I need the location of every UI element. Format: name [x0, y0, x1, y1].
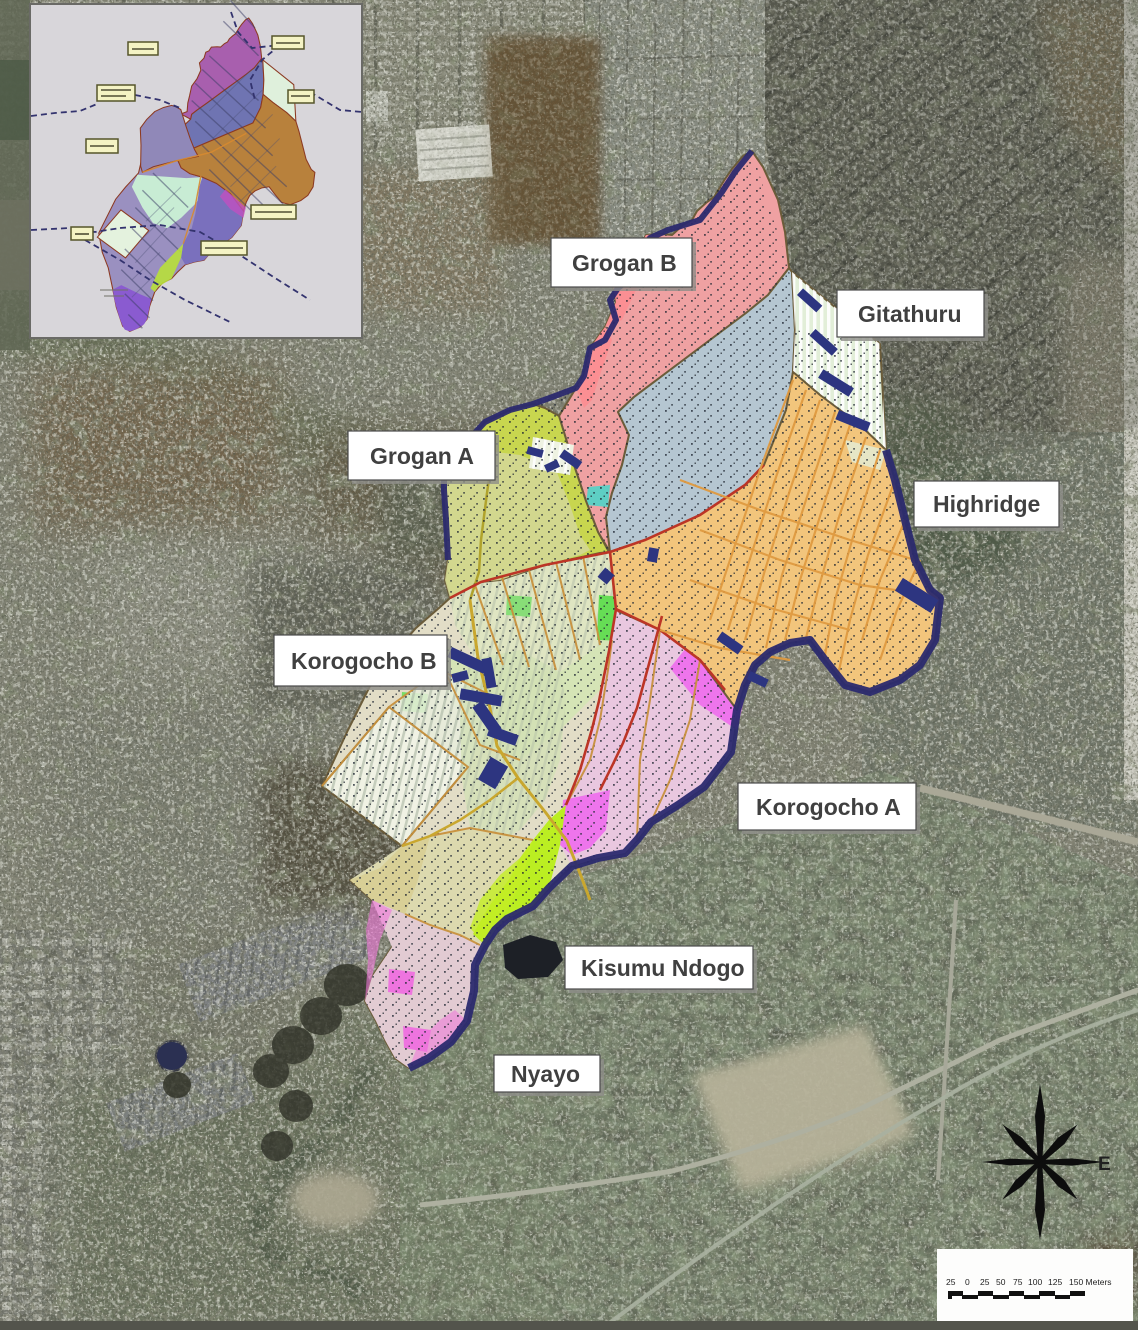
svg-text:25: 25	[980, 1277, 990, 1287]
svg-text:100: 100	[1028, 1277, 1042, 1287]
svg-text:Gitathuru: Gitathuru	[858, 301, 962, 327]
svg-text:Grogan B: Grogan B	[572, 250, 677, 276]
svg-text:Korogocho A: Korogocho A	[756, 794, 901, 820]
svg-text:25: 25	[946, 1277, 956, 1287]
svg-text:50: 50	[996, 1277, 1006, 1287]
svg-text:Highridge: Highridge	[933, 491, 1040, 517]
svg-text:Grogan A: Grogan A	[370, 443, 474, 469]
svg-text:E: E	[1098, 1154, 1111, 1175]
svg-text:Korogocho B: Korogocho B	[291, 648, 437, 674]
svg-text:75: 75	[1013, 1277, 1023, 1287]
svg-text:Nyayo: Nyayo	[511, 1061, 580, 1087]
svg-text:150 Meters: 150 Meters	[1069, 1277, 1112, 1287]
svg-text:125: 125	[1048, 1277, 1062, 1287]
svg-text:Kisumu Ndogo: Kisumu Ndogo	[581, 955, 745, 981]
svg-text:0: 0	[965, 1277, 970, 1287]
